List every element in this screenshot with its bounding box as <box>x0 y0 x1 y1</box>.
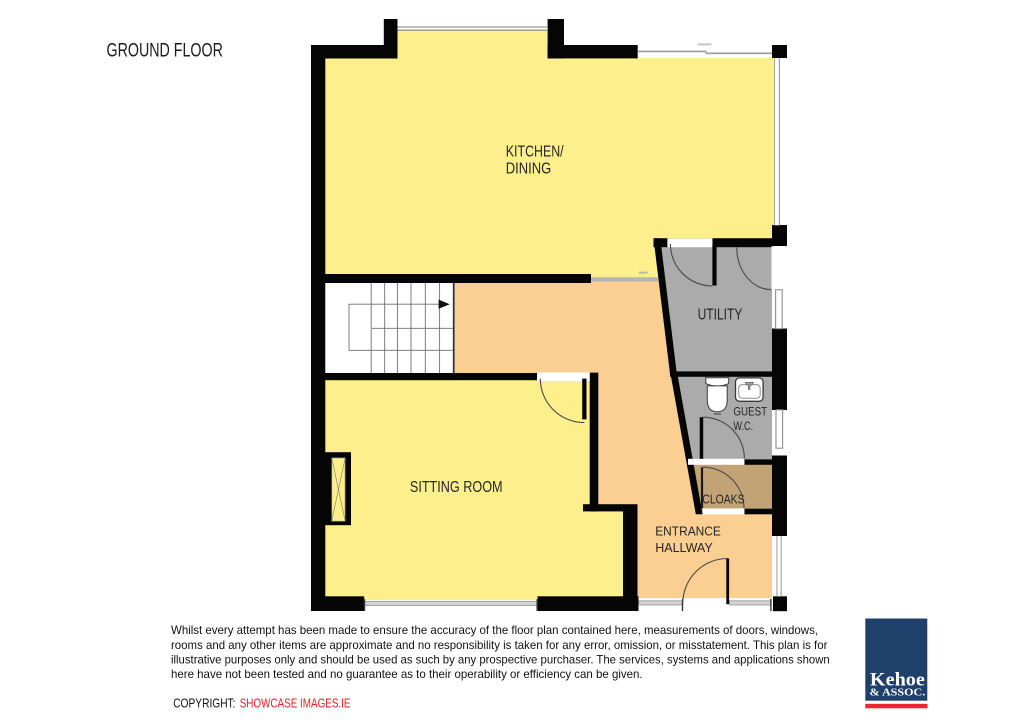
svg-text:HALLWAY: HALLWAY <box>655 540 713 555</box>
svg-text:& ASSOC.: & ASSOC. <box>870 688 926 699</box>
svg-text:KITCHEN/: KITCHEN/ <box>506 143 564 160</box>
svg-text:GROUND FLOOR: GROUND FLOOR <box>107 40 223 61</box>
svg-text:UTILITY: UTILITY <box>698 306 743 323</box>
svg-text:SITTING ROOM: SITTING ROOM <box>410 479 503 496</box>
svg-text:illustrative purposes only and: illustrative purposes only and should be… <box>171 653 830 667</box>
svg-text:here have not been tested and: here have not been tested and no guarant… <box>171 667 643 681</box>
svg-text:Whilst every attempt has been: Whilst every attempt has been made to en… <box>171 623 818 637</box>
svg-text:GUEST: GUEST <box>733 405 767 419</box>
svg-text:COPYRIGHT:: COPYRIGHT: <box>173 696 235 710</box>
svg-text:W.C.: W.C. <box>733 419 753 433</box>
svg-text:ENTRANCE: ENTRANCE <box>655 524 721 539</box>
svg-text:rooms and any other items are: rooms and any other items are approximat… <box>171 638 827 652</box>
svg-text:SHOWCASE IMAGES.IE: SHOWCASE IMAGES.IE <box>240 696 351 710</box>
svg-text:CLOAKS: CLOAKS <box>702 491 744 506</box>
svg-text:DINING: DINING <box>506 160 551 177</box>
